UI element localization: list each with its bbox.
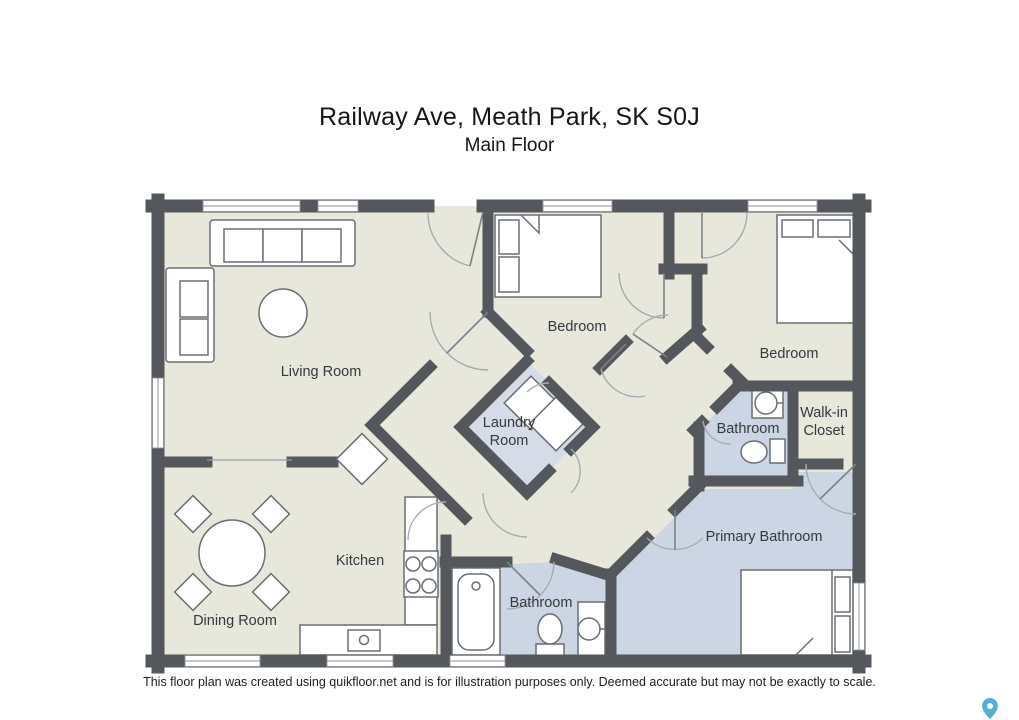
room-label-bathroom-upper: Bathroom	[717, 421, 780, 437]
window	[318, 201, 358, 212]
room-label-kitchen: Kitchen	[336, 553, 384, 569]
disclaimer-text: This floor plan was created using quikfl…	[0, 675, 1019, 689]
room-label-laundry-line1: Laundry	[483, 415, 536, 431]
room-label-primary-bathroom: Primary Bathroom	[706, 529, 823, 545]
window	[748, 201, 817, 212]
room-label-laundry-line2: Room	[490, 433, 529, 449]
bed-icon	[495, 215, 601, 297]
room-label-walkin-line1: Walk-in	[800, 405, 848, 421]
window	[185, 656, 260, 667]
bed-icon	[777, 215, 855, 323]
window	[203, 201, 300, 212]
bathtub-icon	[452, 568, 500, 655]
window	[543, 201, 612, 212]
sofa-icon	[210, 220, 355, 266]
window	[854, 583, 865, 650]
room-label-bedroom-right: Bedroom	[760, 346, 819, 362]
map-pin-icon[interactable]	[982, 698, 998, 719]
dining-table-icon	[199, 520, 265, 586]
loveseat-icon	[166, 268, 214, 362]
floor-plan-drawing: Living Room Bedroom Bedroom Laundry Room…	[0, 0, 1019, 720]
stove-icon	[404, 551, 438, 597]
room-label-living-room: Living Room	[281, 364, 362, 380]
room-label-bathroom-lower: Bathroom	[510, 595, 573, 611]
coffee-table-icon	[259, 289, 307, 337]
floor-plan-page: Railway Ave, Meath Park, SK S0J Main Flo…	[0, 0, 1019, 720]
window	[327, 656, 393, 667]
kitchen-sink-icon	[348, 630, 380, 651]
sink-icon	[752, 388, 783, 418]
sink-icon	[578, 602, 605, 658]
window	[450, 656, 505, 667]
window	[153, 378, 164, 448]
bed-icon	[741, 570, 853, 656]
room-label-bedroom-middle: Bedroom	[548, 319, 607, 335]
toilet-icon	[536, 614, 564, 657]
room-label-dining-room: Dining Room	[193, 613, 277, 629]
room-label-walkin-line2: Closet	[803, 423, 844, 439]
